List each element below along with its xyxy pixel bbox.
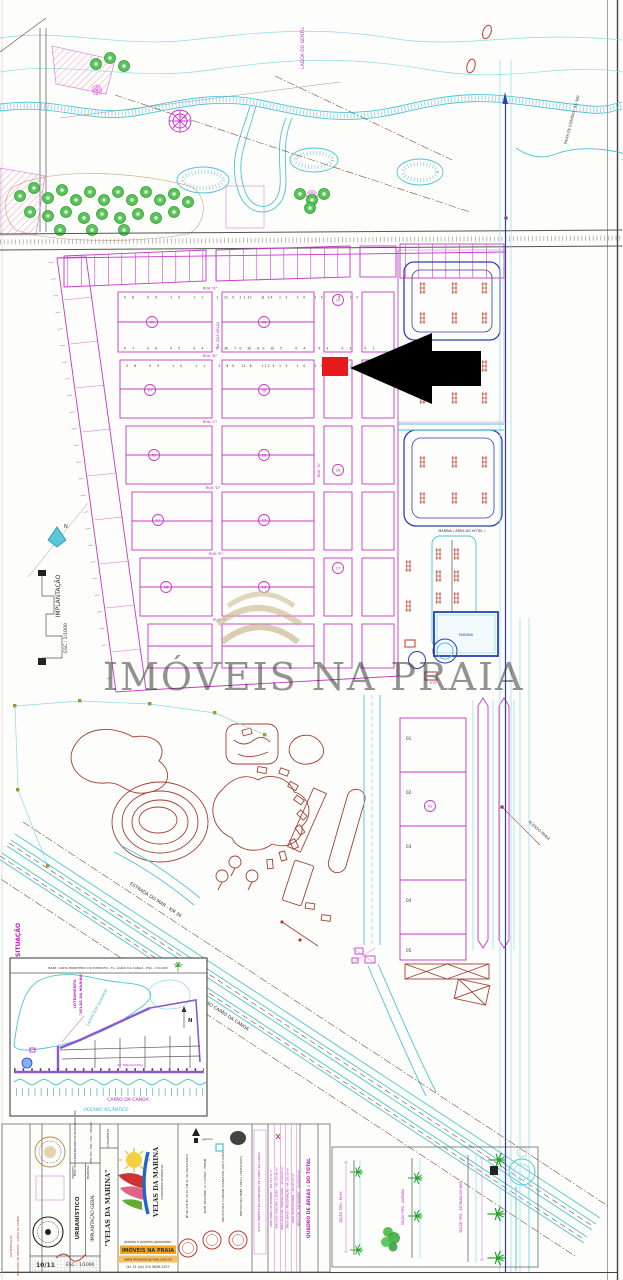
acesso-praia-label: ACESSO PRAIA	[527, 819, 551, 842]
block-id: 05	[150, 320, 155, 324]
resort-complex	[13, 699, 367, 946]
implantacao-scale: ESC.: 1/1000	[63, 623, 69, 653]
inset-site-callout-1: LOTEAMENTO	[72, 979, 77, 1009]
sail-icon	[122, 1199, 142, 1210]
site-plan-sheet: LAGOA DO GENTIL FAIXA DE DOMÍNIO - RS 38…	[0, 0, 623, 1280]
street-label: RUA "A"	[203, 287, 218, 291]
callout	[322, 333, 481, 404]
marina-district: MARINA ( ÁREA DO HOTEL ) MARINA ETE	[398, 250, 504, 685]
auth-line: AUTENTICAÇÃO	[8, 1234, 13, 1257]
bush-cluster-icon	[381, 1227, 400, 1252]
scale-bar: IMPLANTAÇÃO ESC.: 1/1000	[38, 570, 69, 665]
quadro-row: ÁREA INSTITUCIONAL - 28.415,07 m²	[290, 1173, 295, 1223]
north-arrow: N	[28, 503, 88, 577]
red-seal-icon	[203, 1231, 221, 1249]
inset-site-callout-2: "VELAS DA MARINA"	[78, 972, 83, 1016]
block-id: 17	[336, 566, 341, 570]
block-id: 11	[156, 518, 161, 522]
block-id: 18	[164, 585, 169, 589]
agraria-logo-icon	[192, 1128, 200, 1143]
survey-marker-icon	[465, 58, 476, 74]
loteamento-value: "VELAS DA MARINA"	[104, 1170, 112, 1247]
big-lot-number: 04	[406, 898, 412, 903]
stamp-text: RI Nº 384/3888 - LI 17/2007 - FEPAM	[203, 1158, 207, 1213]
notary-stamp-icon	[35, 1137, 65, 1167]
street-label: RUA "E"	[209, 552, 224, 556]
existing-buildings	[405, 964, 490, 1005]
logo-square-icon	[216, 1144, 223, 1151]
contact-line2: www.imoveisnapraia.com.br	[124, 1258, 173, 1262]
big-lot-number: 01	[406, 736, 412, 741]
street-label: RUA "D"	[206, 486, 221, 490]
stamp-text: PROTOCOLO PREF. 190/11 (29/06/2007)	[239, 1156, 243, 1216]
big-lot-number: 02	[406, 790, 412, 795]
projeto-value: URBANÍSTICO	[73, 1196, 81, 1239]
avenue-median	[499, 698, 509, 948]
red-seal-icon	[179, 1239, 197, 1257]
quadro-row: ÁREA VIAS LOT. "MARINA PARK" - 96.210,45…	[279, 1166, 284, 1230]
quadro-header: QUADRO DE ÁREAS : DO TOTAL	[305, 1158, 312, 1238]
south-avenue: 01 02 03 04 05 ACESSO PRAIA	[352, 695, 552, 1096]
block-id: 06	[262, 320, 267, 324]
stamp-text: PROTOCOLO CORSAN 544683568 (28/11/2007)	[221, 1150, 225, 1221]
agraria-text: agraria	[202, 1137, 213, 1141]
block-id: 08	[262, 388, 267, 392]
prancha-label: PRANCHA:	[86, 1165, 90, 1179]
inset-source: BASE: CARTA MINISTÉRIO DO EXÉRCITO - FL.…	[48, 965, 167, 970]
block-id: 09	[152, 453, 157, 457]
velas-da-marina-logo: VELAS DA MARINA CONDOMÍNIO RESIDENCIAL	[118, 1146, 164, 1218]
street-label: RUA "C"	[203, 420, 218, 424]
block-id: 15	[336, 298, 341, 302]
projeto-label: PROJETO:	[71, 1165, 75, 1178]
stamp-text: Nº 60.436 FL 36 LV 3-B CL 36 (06/10/2007…	[185, 1154, 189, 1219]
red-seal-icon	[229, 1231, 247, 1249]
faixa-dominio-label: FAIXA DE DOMÍNIO - RS 389	[563, 94, 581, 144]
inset-north-label: N	[188, 1018, 193, 1024]
inset-map: SITUAÇÃO BASE: CARTA MINISTÉRIO DO EXÉRC…	[10, 923, 207, 1116]
big-lot-number: 05	[406, 948, 412, 953]
quadro-row: ÁREA DAS QUADRAS / LOTES - 245.310,80 m²	[274, 1167, 279, 1229]
round-seal-icon	[33, 1217, 63, 1247]
title-block: AUTENTICAÇÃO REGISTRO DE IMÓVEIS - CAPÃO…	[2, 1110, 330, 1276]
lot-numbers: 07 06 05 04 03 02 01	[226, 347, 380, 351]
contact-line1: IMÓVEIS NA PRAIA	[122, 1247, 174, 1254]
quadro-table: ÁREA TOTAL DO TERRENO - 483.057,42 m² ÁR…	[268, 1124, 312, 1272]
quadro-row: ÁREA COM. "DO MIRANTE" - 29.000,00 m²	[295, 1170, 300, 1227]
auth-line: REGISTRO DE IMÓVEIS - CAPÃO DA CANOA	[15, 1216, 20, 1276]
creek-label: LAGOA DO GENTIL	[300, 27, 306, 69]
inset-title: SITUAÇÃO	[15, 923, 22, 957]
contact-overlay: plantas e projetos aprovados: IMÓVEIS NA…	[118, 1240, 178, 1269]
quadro-row: ÁREA TOTAL DO TERRENO - 483.057,42 m²	[268, 1169, 273, 1227]
sun-icon	[126, 1152, 142, 1168]
block-id: 13	[262, 585, 267, 589]
emblem-icon	[230, 1131, 246, 1145]
city-label: CAPÃO DA CANOA	[107, 1096, 149, 1103]
street-label: RUA "B"	[203, 354, 218, 358]
marina-area-label: MARINA ( ÁREA DO HOTEL )	[438, 528, 486, 533]
loteamento-label: LOTEAMENTO:	[106, 1128, 110, 1148]
location-arrow	[350, 333, 481, 404]
sheet-scale: ESC.: 1/1000	[66, 1262, 95, 1268]
section-label: SEÇÃO TIPO - AVENIDA	[400, 1188, 405, 1225]
prancha-value: IMPLANTAÇÃO GERAL	[89, 1194, 96, 1242]
protocol-stamps: Nº 60.436 FL 36 LV 3-B CL 36 (06/10/2007…	[179, 1128, 247, 1257]
block-id: 12	[262, 518, 267, 522]
implantacao-label: IMPLANTAÇÃO	[55, 574, 62, 617]
ocean-label: OCEANO ATLÂNTICO	[83, 1106, 129, 1113]
approval-text: VISTO: PREFEITURA MUNICIPAL DE CAPÃO DA …	[256, 1151, 261, 1232]
watermark-text: IMÓVEIS NA PRAIA	[103, 655, 525, 699]
big-lot-number: 03	[406, 844, 412, 849]
logo-name: VELAS DA MARINA	[152, 1146, 160, 1218]
section-label: SEÇÃO TIPO - ESTRADA DO MAR	[458, 1181, 463, 1233]
street-label-vertical: AV. DAS VELAS	[216, 321, 220, 348]
block-id: 02	[428, 804, 433, 808]
north-label: N	[64, 524, 68, 530]
resp-text: RESP. TÉC.: ENG. CIVIL - CREA/RS	[88, 1122, 93, 1164]
survey-marker-icon	[481, 24, 493, 40]
selo-stamp	[36, 1176, 64, 1200]
block-id: 16	[336, 468, 341, 472]
wave-icon	[144, 1152, 148, 1214]
block-id: 07	[148, 388, 153, 392]
sheet-number: 10/11	[36, 1262, 55, 1269]
street-label-vertical: RUA "G"	[317, 462, 321, 477]
avenue-label: AV. PARAGUASSU	[117, 1063, 143, 1067]
block-id: 10	[262, 453, 267, 457]
contact-line0: plantas e projetos aprovados:	[124, 1240, 171, 1244]
sections-box: SEÇÃO TIPO - RUAS SEÇÃO TIPO - AVENIDA S…	[332, 1147, 538, 1267]
basin-label: MARINA	[459, 633, 474, 637]
section-label: SEÇÃO TIPO - RUAS	[338, 1191, 343, 1222]
sail-icon	[120, 1186, 144, 1200]
highlight-lot	[322, 357, 348, 376]
avenue-median	[478, 698, 488, 948]
tree-cluster	[6, 53, 330, 241]
contact-line3: tel. 51 (xx) 510 9636-2207	[127, 1265, 170, 1269]
quadro-row: ÁREA VERDE / PRESERVAÇÃO - 84.120,10 m²	[285, 1168, 290, 1228]
